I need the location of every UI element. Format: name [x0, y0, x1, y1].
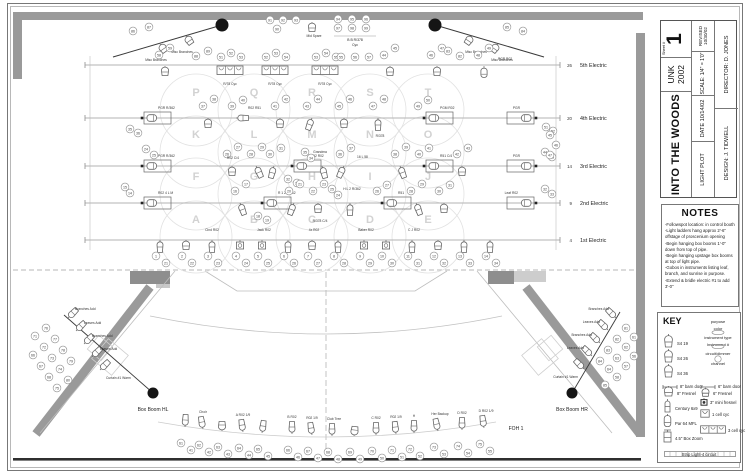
electric-number: 9 — [570, 201, 573, 206]
channel-number: 36 — [338, 152, 342, 156]
channel-number: 24 — [244, 261, 248, 265]
channel-number: 92 — [281, 18, 285, 22]
channel-number: 43 — [226, 452, 230, 456]
channel-number: 28 — [409, 189, 413, 193]
channel-number: 94 — [336, 17, 340, 21]
channel-number: 81 — [624, 326, 628, 330]
channel-number: 69 — [348, 450, 352, 454]
position-label: Box Boom HR — [556, 407, 588, 413]
channel-number: 85 — [603, 383, 607, 387]
channel-number: 46 — [429, 53, 433, 57]
channel-number: 75 — [478, 442, 482, 446]
fresnel-body — [204, 119, 211, 127]
channel-number: 48 — [336, 457, 340, 461]
scale: SCALE: 1/4" = 1'0" — [692, 51, 714, 95]
title-block: INTO THE WOODS UNK 2002 Sheet # 1 LIGHT … — [660, 20, 737, 198]
instrument-fres — [204, 118, 211, 128]
purpose-label: Leaves Add — [84, 321, 101, 325]
ladder-right-dot — [429, 19, 442, 32]
par-body — [429, 115, 439, 122]
area-letter: P — [192, 87, 199, 99]
purpose-label: D R02 1/9 — [479, 409, 494, 413]
box-body — [360, 242, 367, 249]
purpose-label: C J R02 — [408, 228, 420, 232]
channel-number: 31 — [448, 183, 452, 187]
purpose-label: Cind R02 — [205, 228, 219, 232]
electric-number: 14 — [567, 164, 572, 169]
channel-number: 46 — [554, 143, 558, 147]
channel-number: 28 — [249, 152, 253, 156]
channel-number: 32 — [442, 261, 446, 265]
instrument-fres — [218, 422, 225, 432]
channel-number: 87 — [147, 25, 151, 29]
purpose-label: Branches Add — [75, 307, 96, 311]
channel-number: 44 — [247, 453, 251, 457]
key-item-label: S4 26 — [677, 356, 688, 361]
instrument-ell — [375, 118, 381, 131]
purpose-label: Choir — [199, 410, 208, 414]
channel-number: 64 — [607, 367, 611, 371]
instrument-fres — [433, 66, 440, 76]
instrument-ell — [307, 422, 315, 435]
channel-number: 51 — [544, 125, 548, 129]
instrument-ell — [285, 240, 291, 253]
purpose-label: R02 1/9 — [390, 415, 402, 419]
channel-number: 22 — [311, 189, 315, 193]
purpose-label: 4x R02 — [309, 228, 320, 232]
key-item-label: 4.5" Box Zoom — [675, 436, 703, 441]
hang-point — [423, 117, 426, 120]
note-item: -Followspot location: in control booth — [665, 222, 735, 228]
instrument-ell — [259, 420, 267, 433]
position-label: FOH 1 — [509, 426, 524, 432]
purpose-label: Leaves Add — [583, 320, 600, 324]
instrument-ell — [238, 419, 246, 432]
instrument-box — [382, 240, 389, 249]
note-item: -Gobos in instruments listing leaf, bran… — [665, 265, 735, 277]
channel-number: 66 — [286, 448, 290, 452]
fresnel-body — [458, 167, 465, 175]
hang-point — [141, 117, 144, 120]
channel-number: 8 — [333, 254, 335, 258]
par-body — [522, 200, 532, 207]
instrument-ell — [209, 240, 215, 253]
note-item: -Extend & bridle electric #1 to add 3'-0… — [665, 278, 735, 290]
instrument-cyc3 — [312, 66, 338, 75]
channel-number: 29 — [260, 145, 264, 149]
channel-number: 53 — [314, 55, 318, 59]
channel-number: 79 — [69, 359, 73, 363]
area-letter: N — [366, 129, 374, 141]
area-letter: F — [193, 171, 200, 183]
channel-number: 83 — [606, 348, 610, 352]
key-item-label: Par 64 MFL — [675, 421, 697, 426]
hang-point — [381, 202, 384, 205]
position-label: Cyc — [352, 43, 358, 47]
instrument-ell — [268, 165, 277, 179]
page-border-outer — [8, 4, 743, 471]
purpose-label: PGR R02 — [498, 57, 512, 61]
key-item-3-cell-cyc: 3 cell cyc — [700, 421, 745, 439]
electric-name: 3rd Electric — [580, 164, 607, 170]
channel-number: 52 — [229, 51, 233, 55]
purpose-label: PGR — [513, 154, 521, 158]
purpose-label: R/78 Cyc — [223, 82, 237, 86]
instrument-fres — [276, 118, 283, 128]
purpose-label: H — [413, 414, 416, 418]
channel-number: 39 — [404, 145, 408, 149]
instrument-fres — [228, 166, 235, 176]
channel-number: 90 — [275, 27, 279, 31]
wall-top — [13, 12, 643, 20]
purpose-label: D R02 — [457, 411, 467, 415]
channel-number: 25 — [330, 187, 334, 191]
foh-wall-line — [13, 458, 641, 461]
electric-number: 4 — [570, 238, 573, 243]
channel-number: 93 — [294, 18, 298, 22]
fresnel-body — [228, 167, 235, 175]
channel-number: 40 — [417, 152, 421, 156]
date: DATE 10/14/02 — [692, 95, 714, 141]
channel-number: 21 — [164, 261, 168, 265]
instrument-ell — [397, 165, 407, 179]
purpose-label: R/378 — [376, 134, 385, 138]
purpose-label: Branches Add — [571, 333, 592, 337]
channel-number: 33 — [550, 192, 554, 196]
instrument-box — [360, 240, 367, 249]
channel-number: 82 — [615, 337, 619, 341]
purpose-label: R02 1/9 — [306, 416, 318, 420]
purpose-label: Branches Add — [92, 334, 113, 338]
foh-arc — [158, 422, 496, 437]
instrument-box — [236, 240, 243, 249]
box-boom-left-dot — [148, 388, 159, 399]
channel-number: 32 — [543, 187, 547, 191]
channel-number: 48 — [476, 53, 480, 57]
box-body — [258, 242, 265, 249]
purpose-label: PGR R/362 — [158, 106, 175, 110]
platform-right — [522, 335, 563, 375]
instrument-ell — [198, 416, 206, 429]
area-letter: I — [368, 171, 371, 183]
purpose-label: PGM R02 — [440, 106, 455, 110]
area-circle — [276, 201, 348, 273]
cyc3-symbol-icon — [700, 421, 726, 439]
channel-number: 26 — [375, 189, 379, 193]
fresnel-body — [182, 241, 189, 249]
channel-number: 11 — [406, 254, 410, 258]
channel-number: 96 — [364, 17, 368, 21]
note-item: -Light ladders hang approx 2'-6" offstag… — [665, 228, 735, 240]
channel-number: 84 — [521, 29, 525, 33]
instrument-ell — [347, 203, 353, 216]
channel-number: 30 — [268, 152, 272, 156]
instrument-ell — [335, 240, 341, 253]
channel-number: 74 — [456, 444, 460, 448]
channel-number: 78 — [61, 348, 65, 352]
strip-light-label: Strip Light-4 circuit — [658, 452, 740, 457]
channel-number: 36 — [136, 131, 140, 135]
hang-point — [261, 202, 264, 205]
channel-number: 63 — [216, 445, 220, 449]
revised: REVISED 10/30/02 — [692, 21, 714, 51]
area-letter: Q — [250, 87, 259, 99]
channel-number: 3 — [207, 254, 209, 258]
channel-number: 25 — [266, 261, 270, 265]
channel-number: 48 — [382, 97, 386, 101]
channel-number: 28 — [342, 261, 346, 265]
instrument-cyc3 — [262, 66, 288, 75]
channel-number: 15 — [123, 185, 127, 189]
key-item-label: 1 cell cyc — [712, 412, 729, 417]
channel-number: 37 — [349, 146, 353, 150]
instrument-ell — [373, 423, 379, 436]
purpose-label: R02 R51 — [248, 106, 261, 110]
channel-number: 54 — [324, 51, 328, 55]
channel-number: 72 — [408, 447, 412, 451]
instrument-fres — [434, 240, 441, 250]
area-letter: D — [366, 214, 374, 226]
channel-number: 47 — [440, 46, 444, 50]
channel-number: 12 — [432, 254, 436, 258]
channel-number: 30 — [390, 261, 394, 265]
channel-number: 58 — [615, 375, 619, 379]
hang-point — [141, 165, 144, 168]
channel-number: 2 — [181, 254, 183, 258]
par-body — [297, 163, 307, 170]
electric-number: 26 — [567, 63, 572, 68]
channel-number: 41 — [189, 448, 193, 452]
channel-number: 23 — [322, 182, 326, 186]
channel-number: 88 — [194, 54, 198, 58]
purpose-label: Branches Add — [588, 307, 609, 311]
channel-number: 76 — [44, 326, 48, 330]
page-border-inner — [11, 7, 740, 468]
channel-number: 21 — [298, 182, 302, 186]
par-body — [481, 68, 487, 77]
purpose-label: H L 2 R/362 — [343, 187, 361, 191]
channel-number: 1 — [155, 254, 157, 258]
instrument-fres — [308, 22, 315, 32]
wall-right — [636, 33, 645, 437]
instrument-ell — [319, 165, 328, 179]
note-item: -Begin hanging upstage box booms at top … — [665, 253, 735, 265]
channel-number: 38 — [212, 97, 216, 101]
channel-number: 53 — [239, 55, 243, 59]
channel-number: 53 — [442, 452, 446, 456]
venue-year: UNK 2002 — [661, 57, 691, 91]
purpose-label: Jack R02 — [257, 228, 271, 232]
channel-number: 5 — [257, 254, 259, 258]
purpose-label: Curtain #1 Warm — [106, 376, 131, 380]
channel-number: 42 — [284, 97, 288, 101]
par-body — [147, 115, 157, 122]
purpose-label: PGR R/362 — [158, 154, 175, 158]
channel-number: 63 — [615, 356, 619, 360]
purpose-label: Leaves Add — [100, 347, 117, 351]
channel-number: 97 — [336, 26, 340, 30]
channel-number: 16 — [233, 189, 237, 193]
channel-number: 18 — [256, 214, 260, 218]
channel-number: 26 — [292, 261, 296, 265]
purpose-label: R51 C/4 — [440, 154, 452, 158]
purpose-label: Her Backup — [431, 412, 448, 416]
light-plot-drawing: PQRSTKLMNOFGHIJABCDE265th Electric204th … — [0, 0, 750, 475]
instrument-par — [481, 66, 487, 78]
channel-number: 14 — [128, 191, 132, 195]
fresnel-body — [386, 67, 393, 75]
instrument-ell — [461, 240, 467, 253]
proscenium-right — [488, 271, 514, 284]
director: DIRECTOR: D. JONES — [715, 21, 738, 108]
channel-number: 27 — [236, 145, 240, 149]
channel-number: 22 — [190, 261, 194, 265]
par-body — [522, 115, 532, 122]
area-circle — [218, 201, 290, 273]
channel-number: 51 — [219, 55, 223, 59]
channel-number: 32 — [286, 177, 290, 181]
channel-number: 42 — [207, 450, 211, 454]
notes-title: NOTES — [665, 208, 735, 219]
channel-number: 31 — [416, 261, 420, 265]
channel-number: 73 — [50, 356, 54, 360]
channel-number: 99 — [364, 26, 368, 30]
channel-number: 52 — [264, 55, 268, 59]
key-item-label: 3 cell cyc — [728, 428, 745, 433]
channel-number: 44 — [316, 97, 320, 101]
fresnel-body — [184, 35, 195, 46]
channel-number: 65 — [256, 447, 260, 451]
channel-number: 54 — [466, 451, 470, 455]
purpose-label: R/78 Cyc — [318, 82, 332, 86]
fresnel-body — [308, 241, 315, 249]
channel-number: 49 — [358, 457, 362, 461]
electric-name: 1st Electric — [580, 238, 607, 244]
channel-number: 34 — [494, 261, 498, 265]
instrument-fres — [350, 426, 358, 436]
fresnel-body — [314, 204, 321, 212]
channel-number: 86 — [131, 29, 135, 33]
hang-point — [141, 202, 144, 205]
fresnel-body — [340, 119, 347, 127]
purpose-label: Club Tree — [327, 417, 341, 421]
position-label: Box Boom HL — [138, 407, 169, 413]
electric-number: 20 — [567, 116, 572, 121]
channel-number: 74 — [58, 367, 62, 371]
instrument-ell — [392, 421, 399, 434]
channel-number: 82 — [458, 54, 462, 58]
channel-number: 25 — [152, 153, 156, 157]
instrument-box — [258, 240, 265, 249]
purpose-label: Leaf R02 — [505, 191, 519, 195]
channel-number: 77 — [53, 337, 57, 341]
channel-number: 56 — [632, 354, 636, 358]
purpose-label: 16 L 58 — [357, 155, 368, 159]
purpose-label: B R02 — [287, 415, 296, 419]
area-letter: S — [366, 87, 373, 99]
purpose-label: PGR — [513, 106, 521, 110]
channel-number: 30 — [437, 189, 441, 193]
channel-number: 35 — [128, 127, 132, 131]
instrument-ell — [157, 240, 163, 253]
instrument-ell — [409, 240, 415, 253]
channel-number: 45 — [393, 46, 397, 50]
purpose-label: Curtain #1 Warm — [553, 375, 578, 379]
notes-panel: NOTES -Followspot location: in control b… — [661, 204, 739, 307]
channel-number: 45 — [266, 454, 270, 458]
channel-number: 52 — [418, 454, 422, 458]
channel-number: 85 — [505, 25, 509, 29]
area-letter: J — [425, 171, 431, 183]
channel-number: 72 — [42, 345, 46, 349]
key-panel: KEY S4 19S4 26S4 368" barn door8" Fresne… — [657, 312, 741, 463]
instrument-ell — [182, 414, 189, 427]
channel-number: 75 — [55, 386, 59, 390]
channel-number: 55 — [339, 55, 343, 59]
par-body — [387, 200, 397, 207]
fresnel-body — [434, 241, 441, 249]
channel-number: 46 — [348, 97, 352, 101]
channel-number: 6 — [283, 254, 285, 258]
channel-number: 56 — [353, 55, 357, 59]
fresnel-body — [440, 204, 447, 212]
hang-point — [423, 165, 426, 168]
channel-number: 42 — [455, 152, 459, 156]
notes-list: -Followspot location: in control booth-L… — [665, 222, 735, 290]
channel-number: 27 — [316, 261, 320, 265]
purpose-label: R/78 Cyc — [268, 82, 282, 86]
channel-number: 47 — [371, 104, 375, 108]
par-body — [267, 200, 277, 207]
channel-number: 45 — [337, 104, 341, 108]
light-plot-page: PQRSTKLMNOFGHIJABCDE265th Electric204th … — [0, 0, 750, 475]
instrument-fres — [161, 66, 168, 76]
area-letter: A — [192, 214, 200, 226]
key-title: KEY — [663, 316, 682, 326]
proscenium-left — [130, 271, 170, 284]
par-body — [522, 163, 532, 170]
channel-number: 49 — [487, 46, 491, 50]
box-body — [382, 242, 389, 249]
key-item-label: 3" mini fresnel — [710, 400, 736, 405]
channel-number: 35 — [303, 150, 307, 154]
channel-number: 57 — [367, 55, 371, 59]
channel-number: 7 — [307, 254, 309, 258]
channel-number: 84 — [598, 359, 602, 363]
channel-number: 62 — [624, 345, 628, 349]
channel-number: 95 — [350, 17, 354, 21]
sheet-cell: Sheet # 1 — [661, 21, 691, 57]
purpose-label: Baker R02 — [358, 228, 374, 232]
par-body — [147, 200, 157, 207]
instrument-ell — [487, 240, 493, 253]
instrument-fres — [458, 166, 465, 176]
hang-point — [535, 202, 538, 205]
notation-purpose: purpose — [696, 319, 740, 324]
channel-number: 9 — [359, 254, 361, 258]
purpose-label: Leaves Add — [567, 346, 584, 350]
fresnel-body — [276, 119, 283, 127]
purpose-label: Misc Branches — [145, 58, 167, 62]
area-letter: O — [424, 129, 433, 141]
hang-point — [291, 165, 294, 168]
channel-number: 64 — [237, 446, 241, 450]
channel-number: 40 — [241, 98, 245, 102]
par-body — [429, 163, 439, 170]
electric-name: 2nd Electric — [580, 201, 608, 207]
channel-number: 34 — [309, 156, 313, 160]
channel-number: 27 — [385, 183, 389, 187]
